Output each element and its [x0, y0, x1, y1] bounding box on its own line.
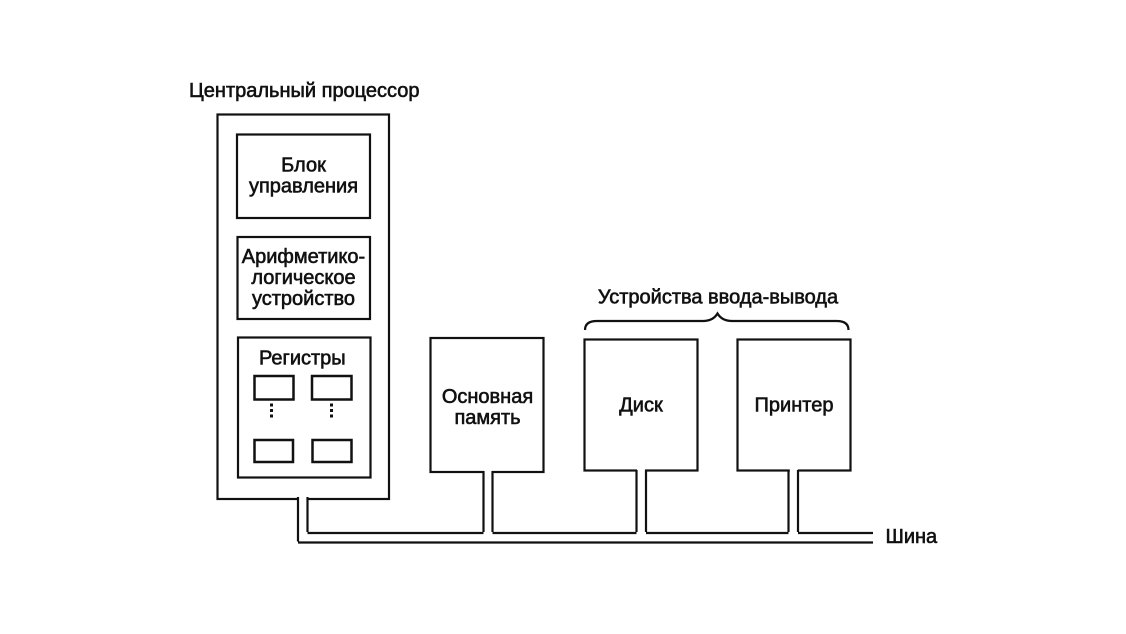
svg-text:Центральный процессор: Центральный процессор — [189, 80, 420, 102]
svg-text:Арифметико-: Арифметико- — [242, 246, 365, 268]
svg-text:Блок: Блок — [281, 155, 326, 177]
svg-text:память: память — [454, 407, 520, 429]
svg-text:Устройства ввода-вывода: Устройства ввода-вывода — [598, 287, 839, 309]
svg-text:Принтер: Принтер — [755, 395, 834, 417]
svg-text:устройство: устройство — [252, 288, 355, 310]
svg-text:Основная: Основная — [442, 386, 533, 408]
svg-text:Регистры: Регистры — [259, 347, 346, 369]
svg-text:логическое: логическое — [251, 267, 355, 289]
svg-text:Шина: Шина — [886, 526, 939, 548]
svg-text:управления: управления — [249, 176, 358, 198]
svg-text:Диск: Диск — [619, 394, 663, 416]
